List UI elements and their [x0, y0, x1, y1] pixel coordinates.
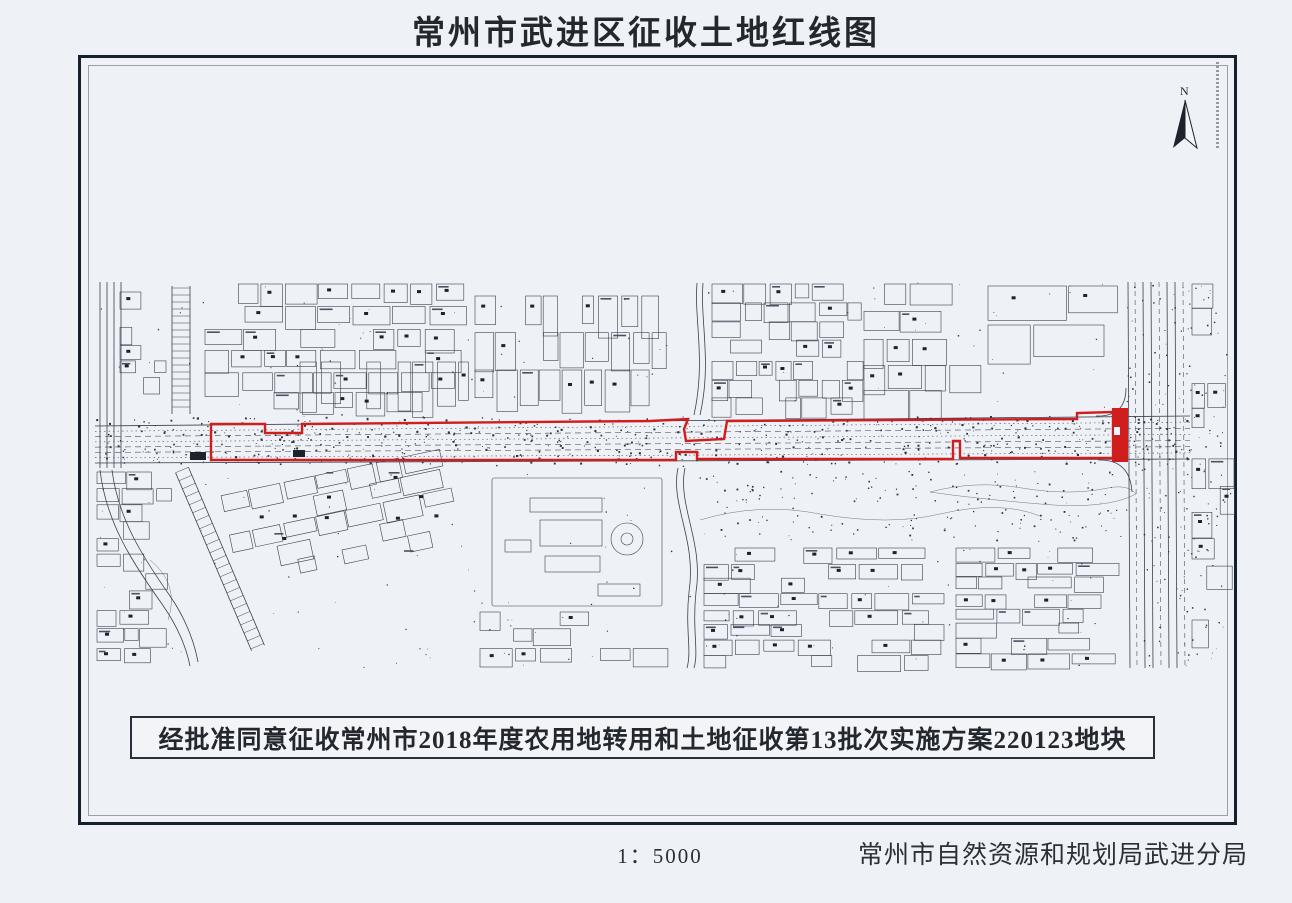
agency-label: 常州市自然资源和规划局武进分局: [858, 835, 1248, 871]
scale-label: 1：5000: [560, 840, 760, 870]
approval-note-text: 经批准同意征收常州市2018年度农用地转用和土地征收第13批次实施方案22012…: [158, 720, 1126, 756]
north-label: N: [1180, 84, 1189, 98]
cadastral-map: N: [0, 0, 1292, 903]
north-arrow-icon: N: [1173, 84, 1197, 148]
approval-note-box: 经批准同意征收常州市2018年度农用地转用和土地征收第13批次实施方案22012…: [130, 716, 1155, 759]
